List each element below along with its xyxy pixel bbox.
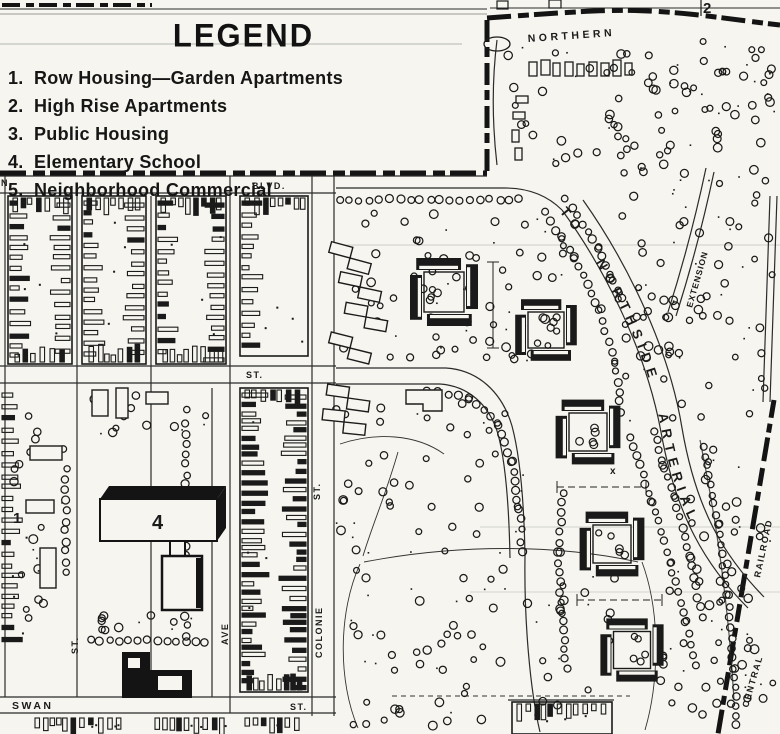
legend-item-number: 4. [8,148,34,176]
dark-building-group [122,652,192,698]
street-label-northern: NORTHERN [527,27,615,45]
legend-panel: LEGEND 1.Row Housing—Garden Apartments 2… [0,0,487,170]
legend-item-number: 5. [8,176,34,204]
x-mark: x [610,466,616,477]
scanned-plan-map: 4 TO NORTHSIDE ARTERIAL BLVD. ST. N NORT… [0,0,780,734]
legend-item-label: Neighborhood Commercial [34,180,272,200]
park-paths [340,437,656,730]
legend-item: 3.Public Housing [8,120,487,148]
legend-item-label: Public Housing [34,124,169,144]
northern-buildings [484,37,632,160]
legend-item-number: 1. [8,64,34,92]
railroad-label-central: CENTRAL [740,654,764,708]
legend-item: 4.Elementary School [8,148,487,176]
street-label-st-top: ST. [246,370,264,380]
legend-item-number: 2. [8,92,34,120]
legend-item: 2.High Rise Apartments [8,92,487,120]
street-label-colonie-st: ST. [312,482,322,500]
street-grid [0,176,614,716]
railroad-line [718,196,777,734]
legend-item-label: Row Housing—Garden Apartments [34,68,343,88]
school-number-label: 4 [152,512,164,534]
legend-item-number: 3. [8,120,34,148]
block-number-1: 1 [13,510,21,527]
legend-list: 1.Row Housing—Garden Apartments 2.High R… [0,64,487,204]
legend-title: LEGEND [0,17,487,55]
building-footprint-blocks [2,196,612,734]
legend-item: 5.Neighborhood Commercial [8,176,487,204]
street-label-st-left: ST. [70,636,80,654]
legend-item: 1.Row Housing—Garden Apartments [8,64,487,92]
school-building: 4 [100,486,226,610]
boundary-number-2: 2 [703,0,711,17]
street-label-st-bottom: ST. [290,702,308,712]
street-label-swan: SWAN [12,700,54,712]
street-label-colonie: COLONIE [314,606,324,658]
arterial-road-label: TO NORTHSIDE ARTERIAL [557,204,702,526]
street-label-ave: AVE [220,623,230,645]
legend-item-label: Elementary School [34,152,201,172]
legend-item-label: High Rise Apartments [34,96,227,116]
